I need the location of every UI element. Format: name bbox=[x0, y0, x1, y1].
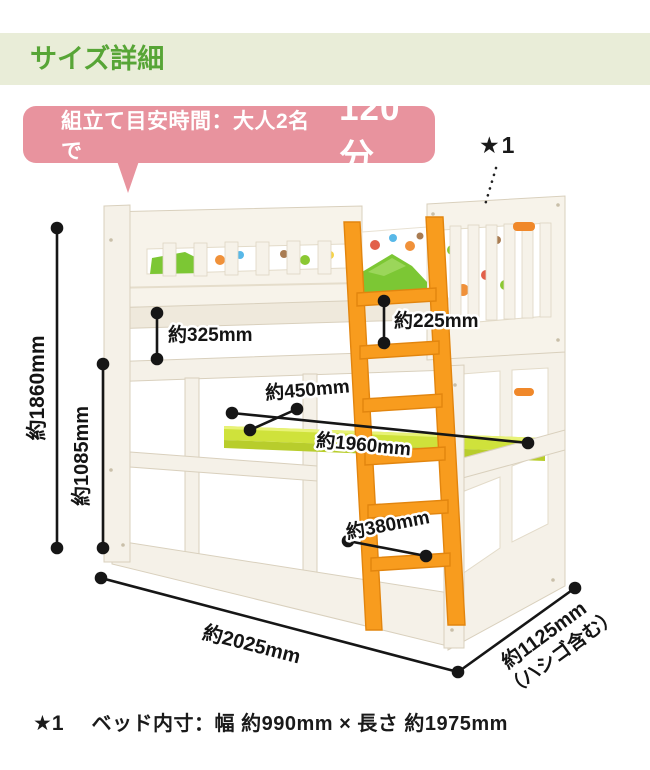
footnote: ★1 ベッド内寸：幅 約990mm × 長さ 約1975mm bbox=[33, 707, 508, 736]
size-detail-section: サイズ詳細 組立て目安時間：大人2名で 120分 ★1 bbox=[0, 0, 650, 770]
front-left-post bbox=[104, 205, 130, 562]
star1-pointer-line bbox=[485, 168, 496, 205]
footnote-text: ベッド内寸：幅 約990mm × 長さ 約1975mm bbox=[92, 707, 508, 736]
footnote-marker: ★1 bbox=[33, 711, 64, 736]
dim-label-rail-inner: 約225mm bbox=[394, 309, 479, 332]
end-panel bbox=[448, 350, 565, 650]
dim-label-rail-top: 約325mm bbox=[168, 323, 253, 346]
dimension-desk-depth: 約450mm bbox=[244, 374, 351, 436]
dim-label-under-height: 約1085mm bbox=[69, 406, 93, 506]
dim-label-total-height: 約1860mm bbox=[25, 335, 49, 440]
bed-size-diagram: 約1860mm 約1085mm 約325mm 約225mm 約450mm bbox=[0, 0, 650, 770]
front-rail bbox=[106, 206, 362, 308]
orange-clip-lower bbox=[514, 388, 534, 396]
orange-clip-headboard bbox=[513, 222, 535, 231]
dimension-under-height: 約1085mm bbox=[69, 358, 109, 555]
dimension-total-height: 約1860mm bbox=[25, 222, 63, 555]
